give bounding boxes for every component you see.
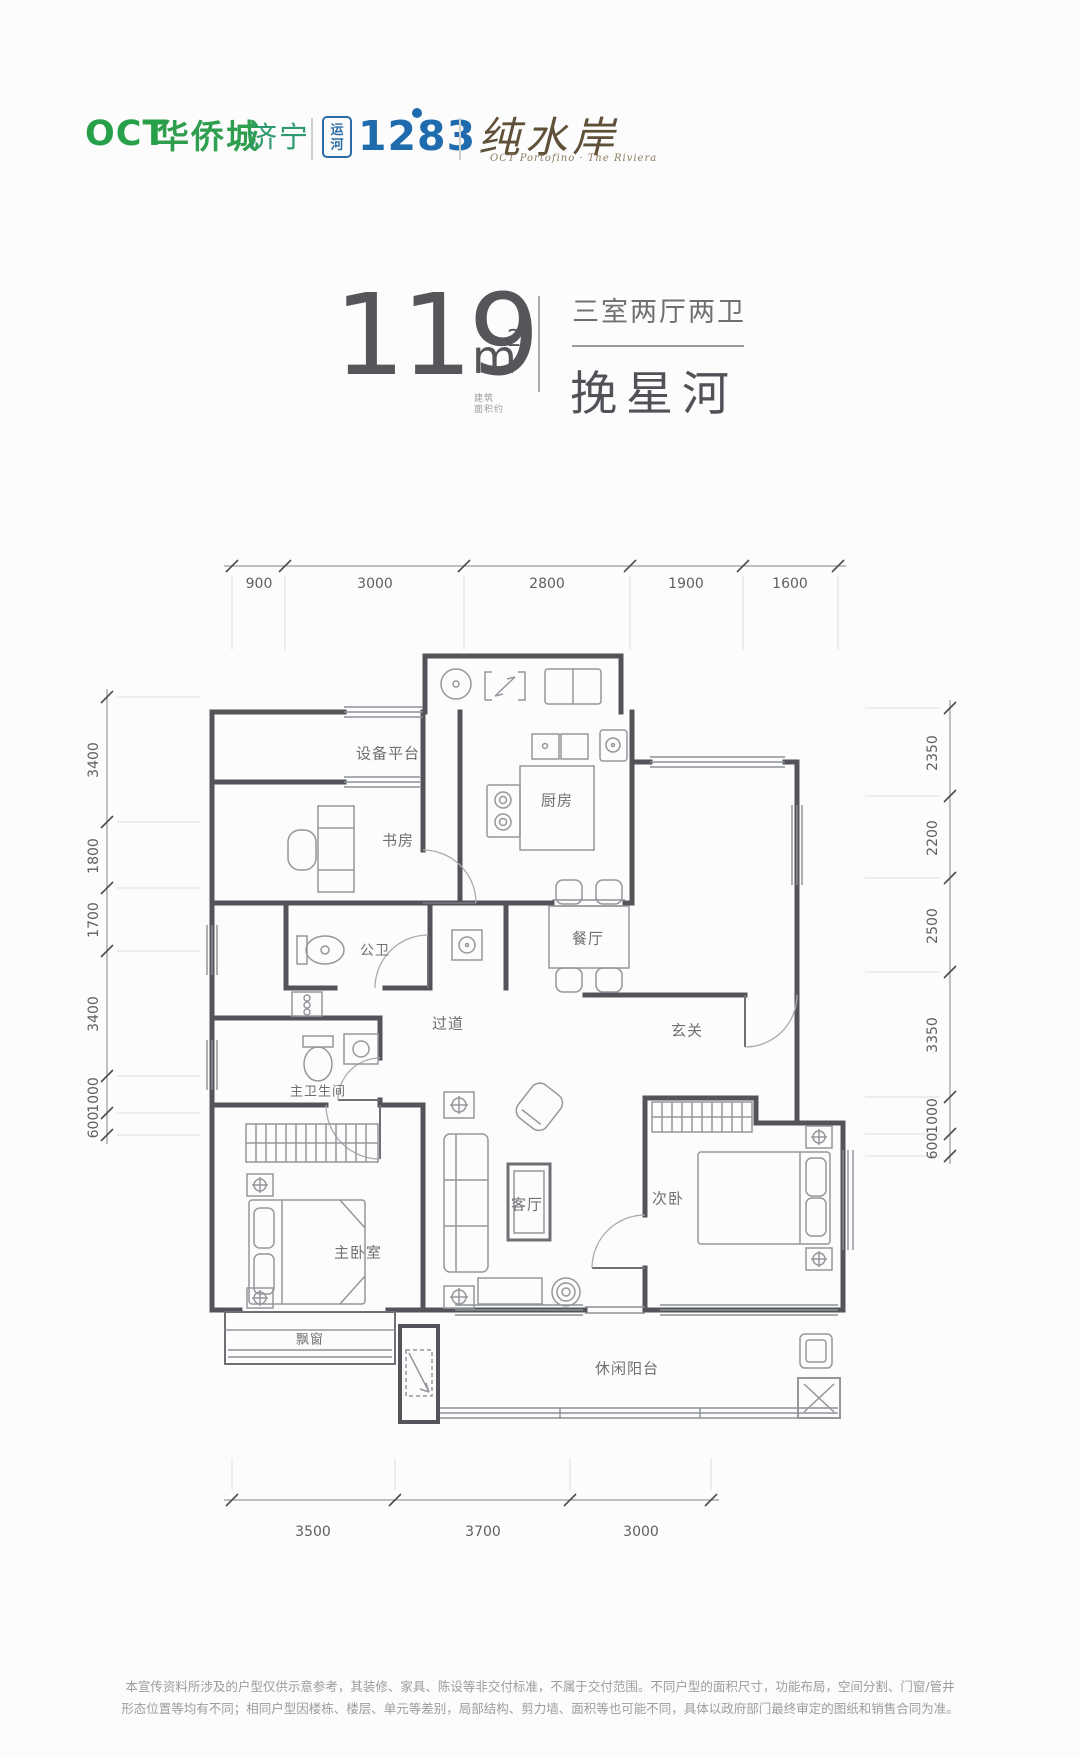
room-label-0: 设备平台 <box>356 743 420 764</box>
room-label-12: 休闲阳台 <box>595 1358 659 1379</box>
dim-label-6: 3700 <box>465 1524 501 1540</box>
room-label-2: 厨房 <box>541 790 573 811</box>
dim-label-7: 3000 <box>623 1524 659 1540</box>
dim-label-10: 1700 <box>86 902 102 938</box>
room-label-8: 客厅 <box>511 1194 543 1215</box>
room-label-9: 次卧 <box>652 1188 684 1209</box>
room-label-4: 公卫 <box>360 940 390 960</box>
dim-label-17: 3350 <box>925 1017 941 1053</box>
dim-label-15: 2200 <box>925 820 941 856</box>
dim-label-3: 1900 <box>668 576 704 592</box>
disclaimer-line2: 形态位置等均有不同；相同户型因楼栋、楼层、单元等差别，局部结构、剪力墙、面积等也… <box>118 1698 962 1720</box>
dim-label-0: 900 <box>246 576 273 592</box>
dim-label-8: 3400 <box>86 742 102 778</box>
dim-label-9: 1800 <box>86 838 102 874</box>
dim-label-12: 1000 <box>86 1077 102 1113</box>
room-label-10: 主卧室 <box>334 1242 382 1263</box>
plan-labels-layer: 设备平台书房厨房餐厅公卫过道玄关主卫生间客厅次卧主卧室飘窗休闲阳台9003000… <box>0 0 1080 1758</box>
disclaimer: 本宣传资料所涉及的户型仅供示意参考，其装修、家具、陈设等非交付标准，不属于交付范… <box>118 1676 962 1720</box>
dim-label-14: 2350 <box>925 735 941 771</box>
floorplan-flyer-page: OCT 华侨城 济宁 运 河 1283 纯水岸 OCT Portofino · … <box>0 0 1080 1758</box>
room-label-7: 主卫生间 <box>290 1081 346 1100</box>
room-label-6: 玄关 <box>671 1020 703 1041</box>
dim-label-4: 1600 <box>772 576 808 592</box>
room-label-1: 书房 <box>382 830 414 851</box>
dim-label-1: 3000 <box>357 576 393 592</box>
room-label-11: 飘窗 <box>296 1329 324 1348</box>
dim-label-16: 2500 <box>925 908 941 944</box>
dim-label-18: 1000 <box>925 1098 941 1134</box>
room-label-3: 餐厅 <box>572 928 604 949</box>
disclaimer-line1: 本宣传资料所涉及的户型仅供示意参考，其装修、家具、陈设等非交付标准，不属于交付范… <box>118 1676 962 1698</box>
dim-label-2: 2800 <box>529 576 565 592</box>
dim-label-19: 600 <box>925 1133 941 1160</box>
dim-label-11: 3400 <box>86 996 102 1032</box>
room-label-5: 过道 <box>432 1013 464 1034</box>
dim-label-13: 600 <box>86 1112 102 1139</box>
dim-label-5: 3500 <box>295 1524 331 1540</box>
